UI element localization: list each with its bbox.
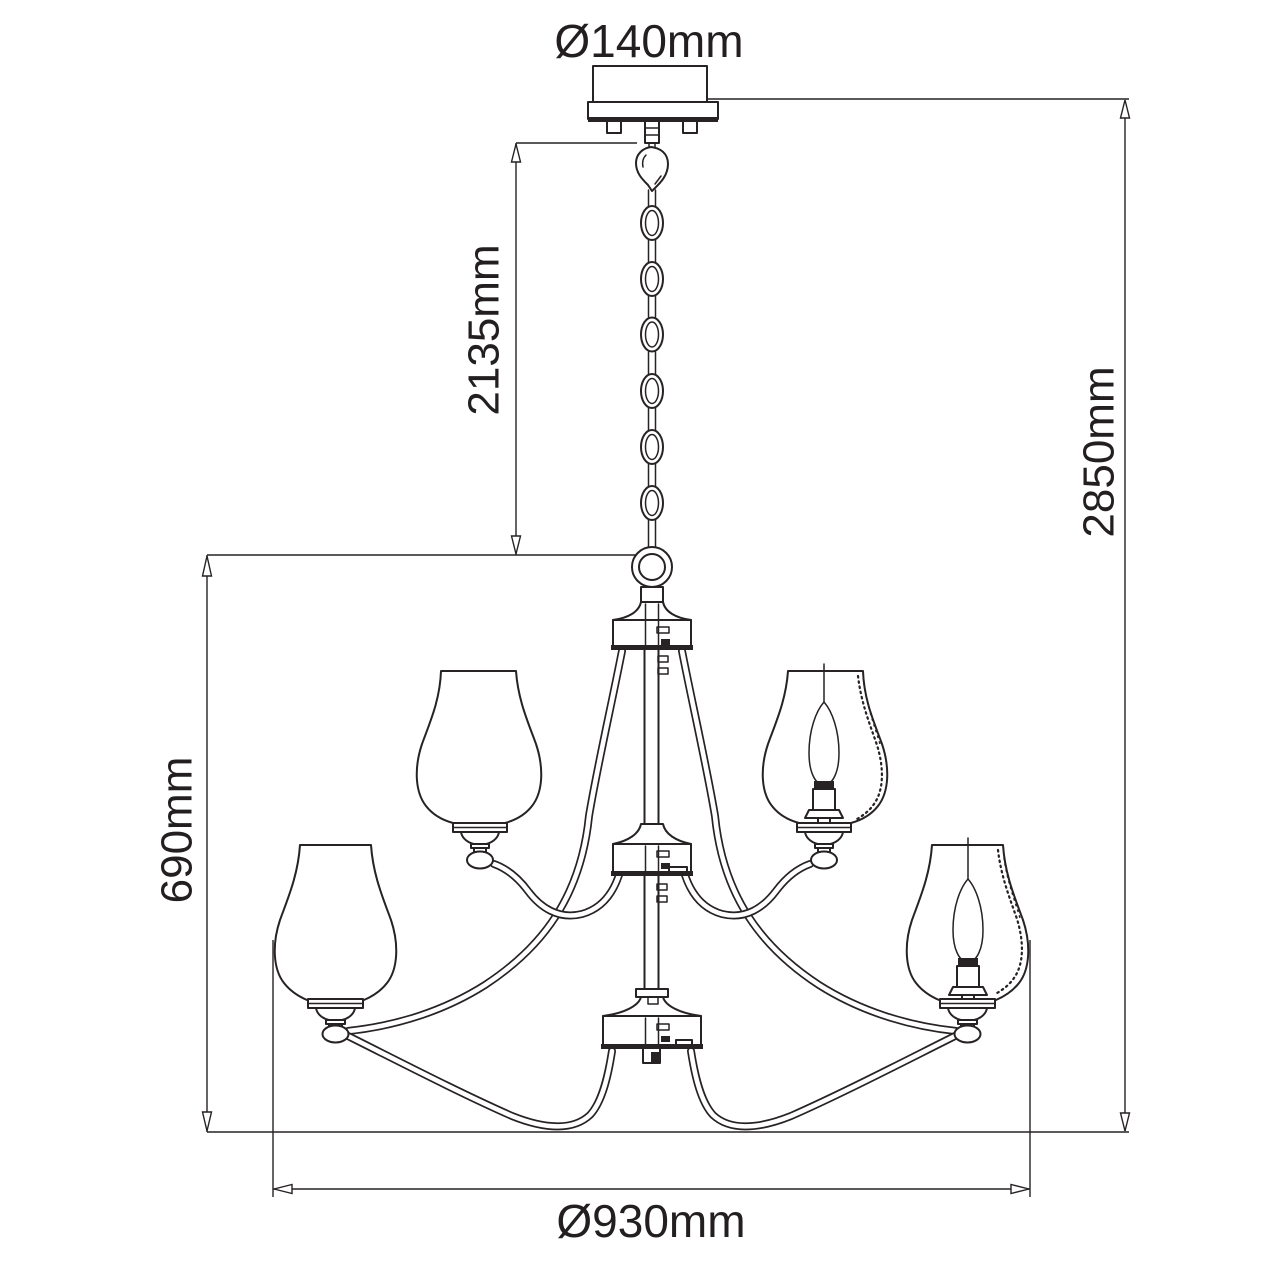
chain-link: [641, 262, 663, 296]
dimension-lines: 2850mm 2135mm 690mm Ø930mm: [152, 99, 1129, 1247]
canopy-nipple: [645, 121, 659, 143]
total-height-label: 2850mm: [1074, 366, 1123, 537]
lamp-socket: [957, 966, 979, 987]
arrow-down-icon: [1121, 1113, 1130, 1131]
arm-ball: [811, 852, 837, 869]
chandelier-dimension-drawing: 2850mm 2135mm 690mm Ø930mm: [0, 0, 1280, 1280]
bottom-bell: [603, 997, 701, 1016]
arrow-up-icon: [1121, 100, 1130, 118]
hanging-hook: [636, 143, 668, 191]
bottom-hub-body: [603, 1016, 701, 1048]
center-column-lower: [636, 875, 668, 997]
bottom-finial: [643, 1048, 660, 1063]
chain-link: [641, 486, 663, 520]
canopy-box: [593, 66, 707, 102]
chain-links: [641, 206, 663, 520]
lower-arm-left: [348, 1036, 612, 1126]
lamp-socket: [813, 789, 835, 810]
chain-link: [641, 430, 663, 464]
chain-link: [641, 374, 663, 408]
ceiling-canopy: Ø140mm: [554, 15, 743, 143]
center-column-upper: [645, 649, 669, 824]
top-bell: [613, 602, 691, 620]
middle-bell: [613, 824, 691, 844]
carabiner-icon: [636, 147, 668, 191]
middle-hub: [613, 824, 691, 875]
canopy-flange: [588, 102, 718, 119]
arm-ball: [955, 1026, 981, 1043]
dimension-chain-length: 2135mm: [459, 143, 637, 555]
body-height-label: 690mm: [152, 757, 201, 904]
top-ring-and-hub: [613, 547, 691, 649]
chain-length-label: 2135mm: [459, 244, 508, 415]
arrow-up-icon: [512, 144, 521, 162]
arrow-down-icon: [512, 536, 521, 554]
chain-link: [641, 206, 663, 240]
middle-hub-body: [613, 844, 691, 875]
arrow-down-icon: [203, 1112, 212, 1131]
canopy-tab-right: [683, 121, 697, 133]
shade-lower-left: [275, 845, 396, 1000]
arrow-right-icon: [1011, 1185, 1029, 1194]
shade-upper-left: [417, 671, 541, 823]
top-hub-body: [613, 620, 691, 649]
column-flange: [636, 989, 668, 997]
chain-link: [641, 318, 663, 352]
green-arrow-up-icon: [203, 556, 212, 576]
ring-block: [641, 587, 663, 602]
canopy-diameter-label: Ø140mm: [554, 15, 743, 67]
arrow-left-icon: [274, 1185, 292, 1194]
dimension-total-height: 2850mm: [1074, 100, 1129, 1131]
dimension-body-height: 690mm: [152, 555, 650, 1132]
lower-arm-right: [691, 1036, 955, 1126]
body-diameter-label: Ø930mm: [556, 1195, 745, 1247]
arm-ball: [467, 852, 493, 869]
bottom-hub: [603, 997, 701, 1048]
hanging-chain: [641, 190, 663, 547]
arm-ball: [323, 1026, 349, 1043]
canopy-tab-left: [607, 121, 621, 133]
drawing-page: 2850mm 2135mm 690mm Ø930mm: [0, 0, 1280, 1280]
